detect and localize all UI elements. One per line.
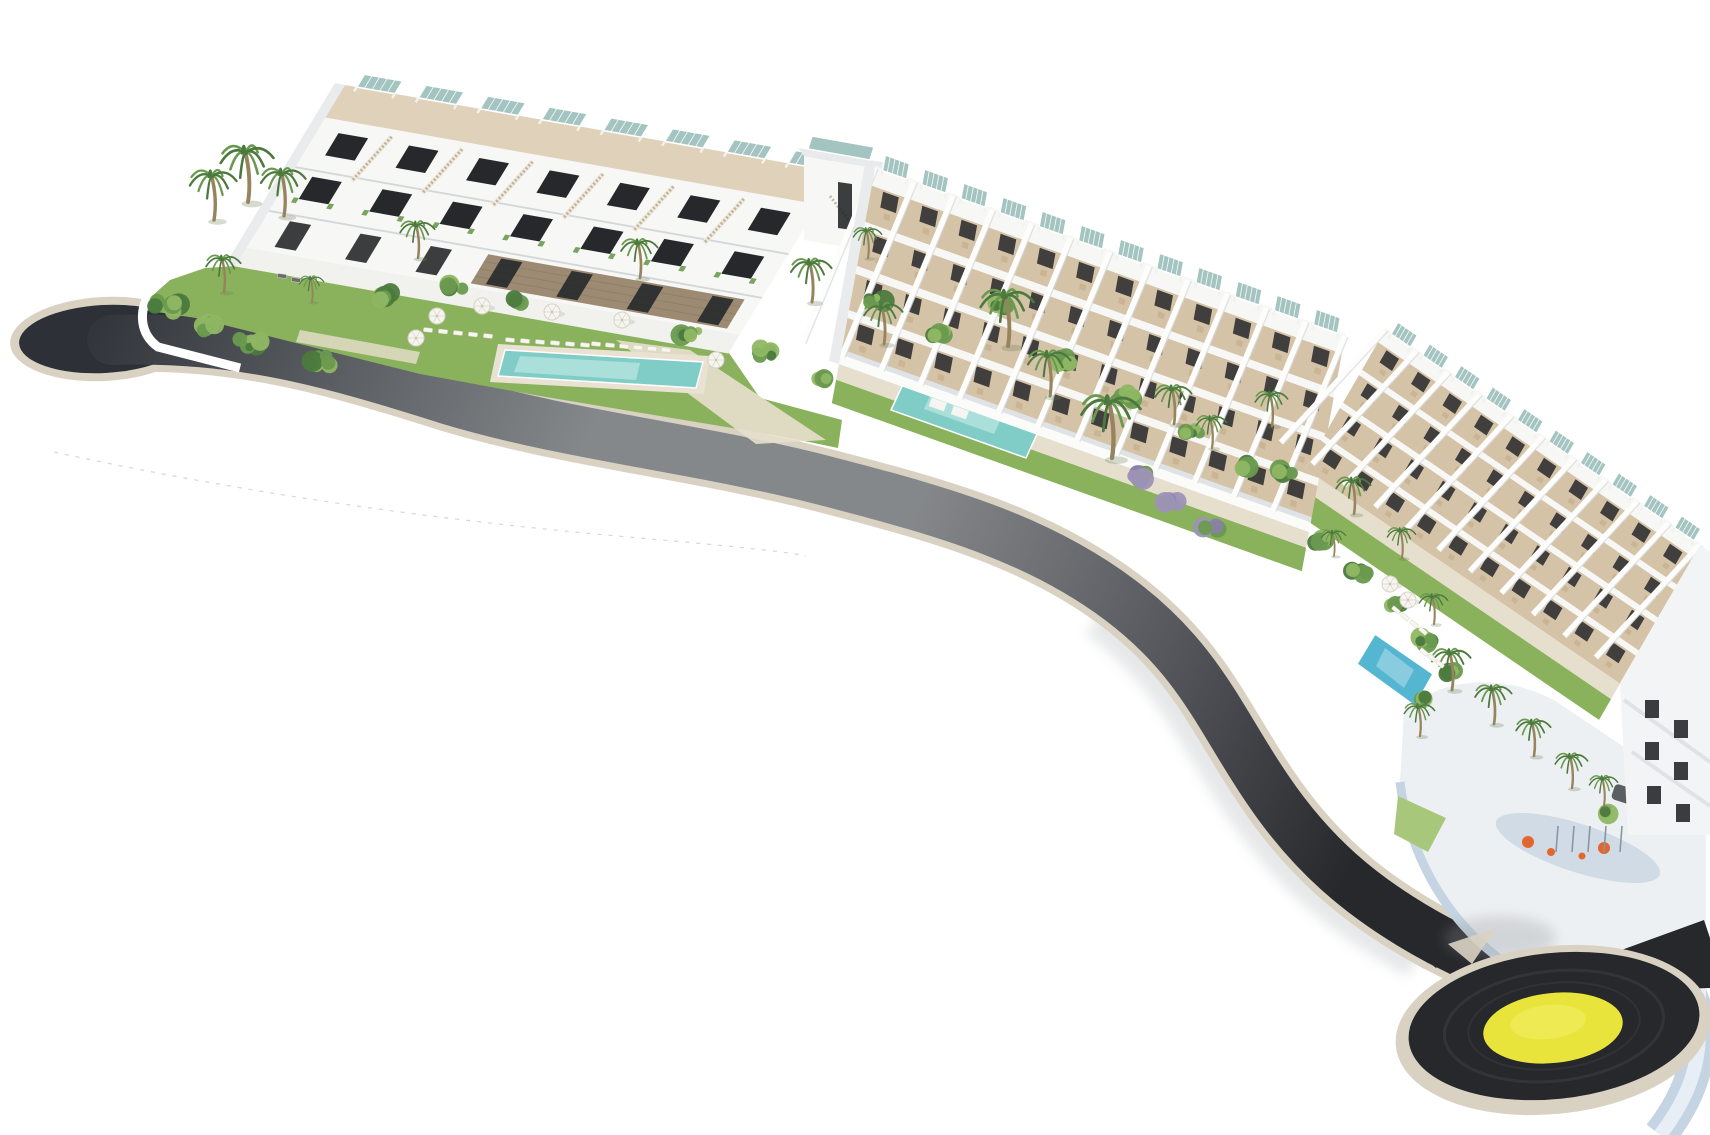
shrub-cluster (1155, 492, 1187, 513)
render-canvas (0, 0, 1710, 1135)
aerial-site-plan (0, 0, 1710, 1135)
